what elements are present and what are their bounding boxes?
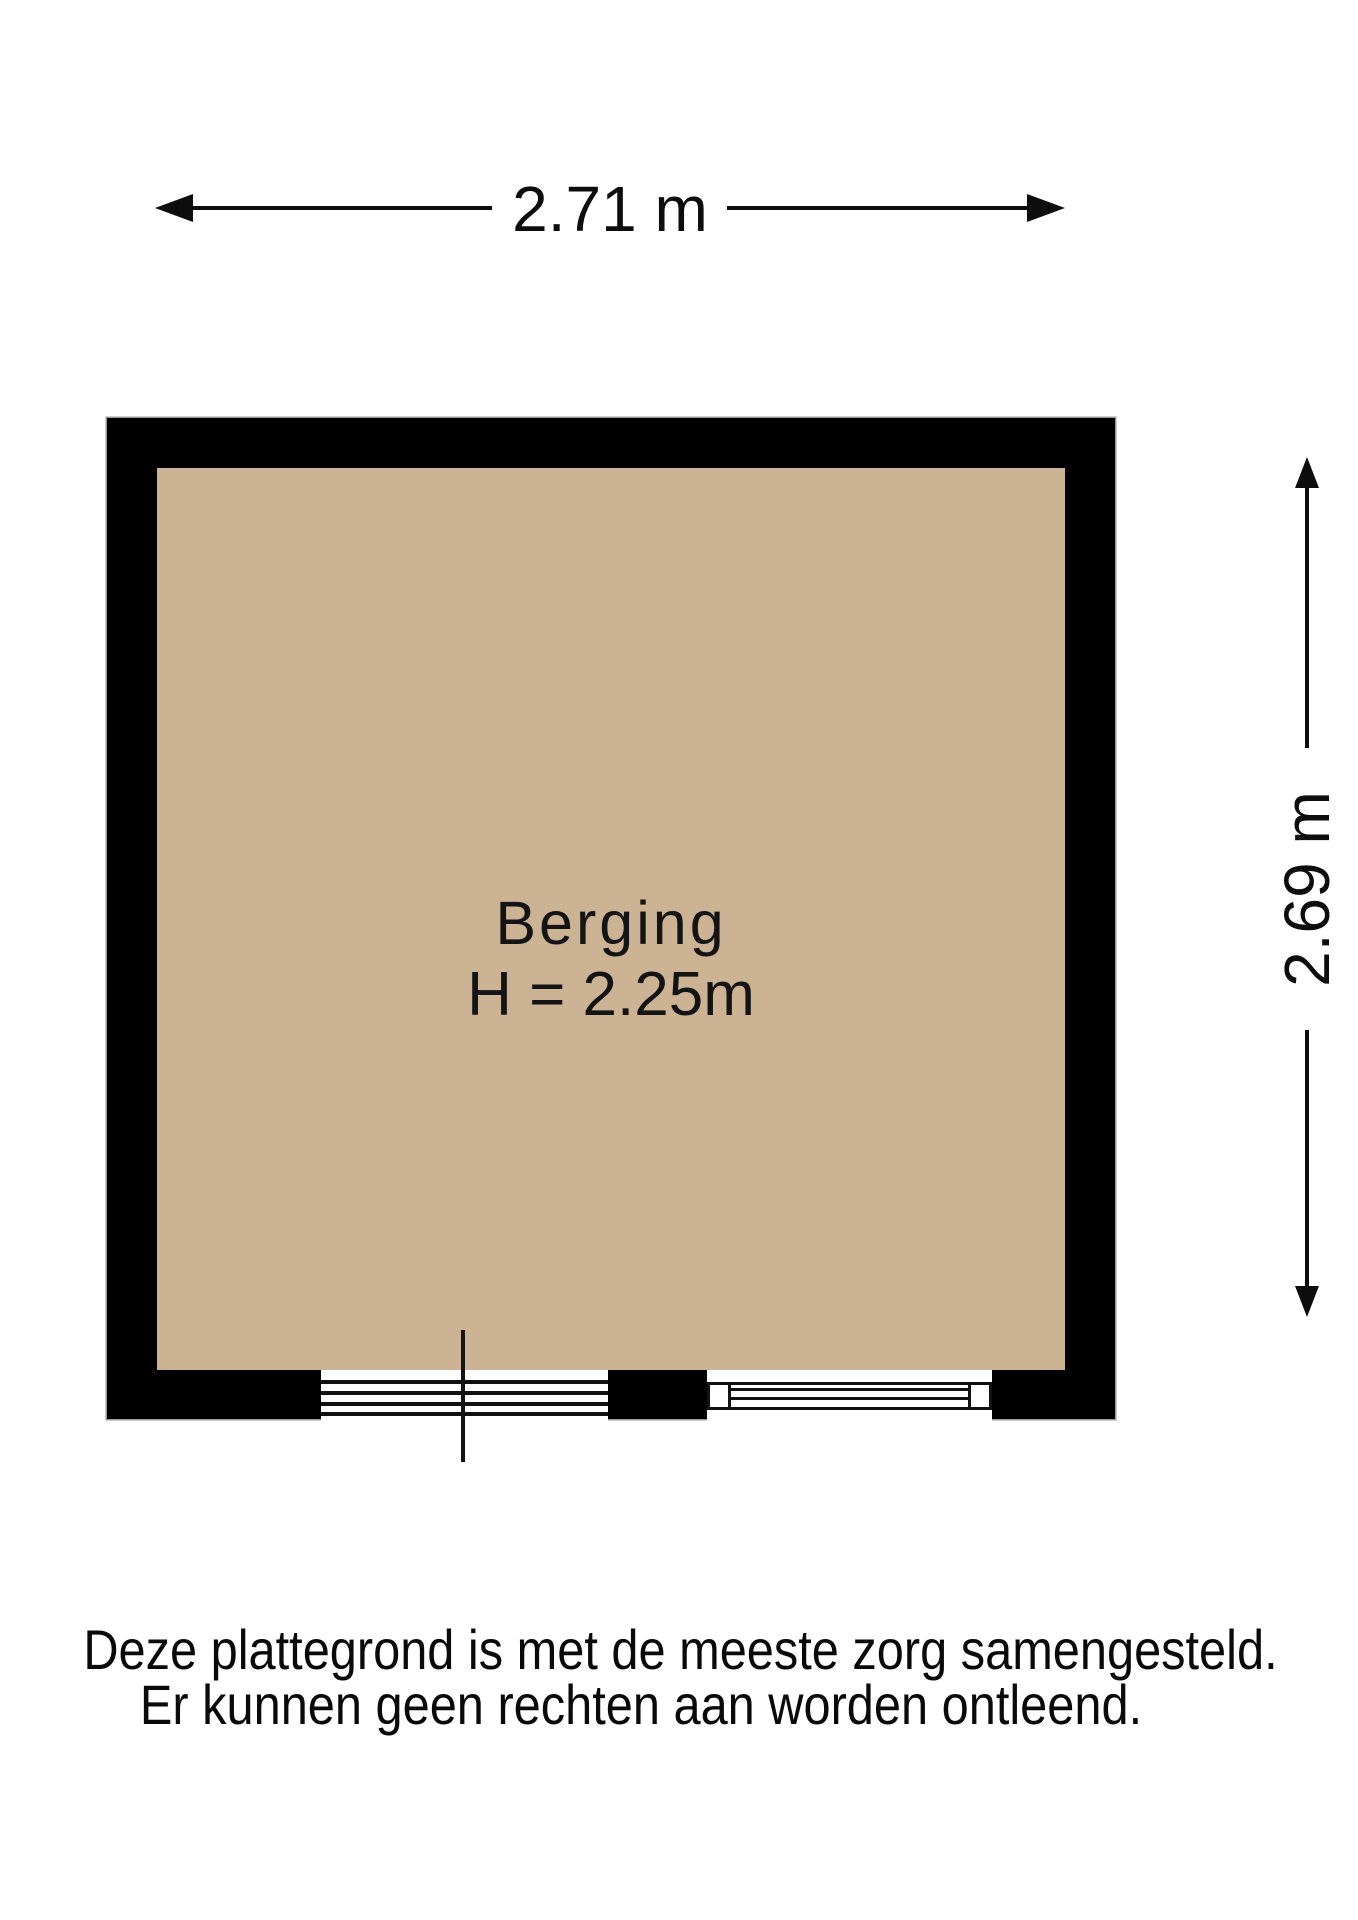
arrow-right-icon (1027, 194, 1065, 222)
window-framed (707, 1370, 992, 1421)
arrow-up-icon (1295, 457, 1319, 488)
height-dimension-line-bottom (1305, 1030, 1309, 1287)
width-dimension: 2.71 m (0, 0, 1358, 260)
window-framed-pane-line (731, 1397, 968, 1400)
room-ceiling-height-label: H = 2.25m (157, 960, 1065, 1030)
room-name-label: Berging (157, 888, 1065, 958)
height-dimension: 2.69 m (1150, 380, 1358, 1380)
window-framed-frame (707, 1382, 992, 1410)
window-framed-mullion-right (968, 1385, 971, 1407)
floorplan-page: 2.71 m Berging H = 2.25m 2.69 m Deze pla… (0, 0, 1358, 1920)
window-framed-pane-line (731, 1388, 968, 1391)
width-dimension-line-right (727, 206, 1030, 210)
disclaimer-line-2: Er kunnen geen rechten aan worden ontlee… (83, 1677, 1198, 1733)
arrow-left-icon (155, 194, 193, 222)
disclaimer-line-1: Deze plattegrond is met de meeste zorg s… (83, 1622, 1198, 1678)
width-dimension-label: 2.71 m (460, 177, 760, 241)
height-dimension-line-top (1305, 486, 1309, 748)
door-reference-line (461, 1330, 465, 1462)
height-dimension-label: 2.69 m (1275, 739, 1339, 1039)
width-dimension-line-left (190, 206, 492, 210)
arrow-down-icon (1295, 1286, 1319, 1317)
